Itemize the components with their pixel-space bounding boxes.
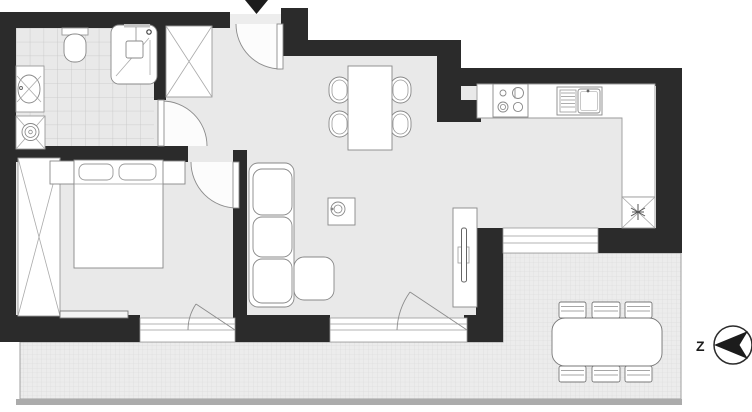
kitchen-window xyxy=(503,228,598,253)
nightstand-right xyxy=(161,161,185,184)
outdoor-dining-set xyxy=(552,302,662,382)
compass-label: Z xyxy=(696,338,705,354)
wall-left xyxy=(0,12,16,342)
tv-screen xyxy=(462,228,467,282)
floor-plan-drawing: Z xyxy=(0,0,752,412)
washing-machine xyxy=(16,116,45,149)
double-bed xyxy=(74,160,163,268)
entry-door-leaf xyxy=(277,24,283,69)
wall-step-stub xyxy=(437,100,481,122)
living-window xyxy=(330,318,467,342)
hallway xyxy=(166,26,212,97)
pillow-right xyxy=(119,164,156,180)
tv-sideboard xyxy=(453,208,477,307)
faucet xyxy=(587,90,590,93)
bedroom-window xyxy=(140,318,235,342)
wall-kitchen-bottom xyxy=(598,228,682,253)
terrace-shadow xyxy=(16,399,682,405)
refrigerator xyxy=(622,197,655,228)
bathroom-door-leaf xyxy=(158,100,164,146)
kitchen-sink xyxy=(557,87,602,115)
dining-chair xyxy=(390,111,411,137)
outdoor-chair xyxy=(559,302,586,318)
outdoor-chair xyxy=(559,366,586,382)
outdoor-chair xyxy=(625,302,652,318)
dining-chair xyxy=(329,111,350,137)
wall-kitchen-right xyxy=(656,68,682,253)
outdoor-chair xyxy=(625,366,652,382)
wall-pier-living-door xyxy=(464,315,503,342)
dining-table xyxy=(348,66,392,150)
toilet xyxy=(62,28,88,62)
wall-bottom-pier xyxy=(235,315,330,342)
outdoor-table xyxy=(552,318,662,366)
coffee-table xyxy=(328,198,355,225)
wall-bottom-left xyxy=(0,315,140,342)
pillow-left xyxy=(79,164,113,180)
wall-kitchen-top xyxy=(455,68,682,86)
floor-plan: Z xyxy=(0,0,752,412)
nightstand-left xyxy=(50,161,74,184)
wall-step-band xyxy=(287,40,456,56)
dining-chair xyxy=(329,77,350,103)
shower xyxy=(111,24,157,84)
bedroom-door-leaf xyxy=(233,162,239,208)
outdoor-chair xyxy=(592,366,620,382)
washbasin xyxy=(17,75,41,103)
dining-chair xyxy=(390,77,411,103)
hall-wardrobe xyxy=(166,26,212,97)
cooktop xyxy=(493,84,528,117)
radiator xyxy=(60,311,128,318)
outdoor-chair xyxy=(592,302,620,318)
